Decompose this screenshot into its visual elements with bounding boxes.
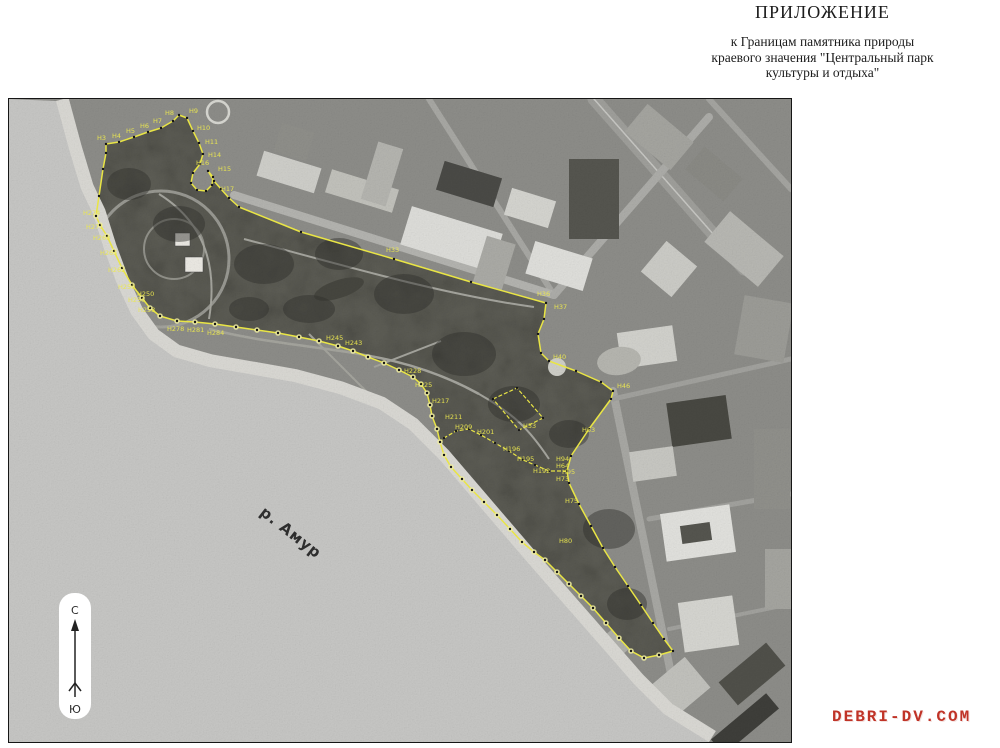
boundary-point-label: Н196 bbox=[503, 445, 520, 453]
boundary-point-label: Н53 bbox=[523, 422, 536, 430]
page-title: ПРИЛОЖЕНИЕ bbox=[645, 2, 1000, 23]
boundary-point-label: Н192 bbox=[533, 467, 550, 475]
boundary-point-label: Н63 bbox=[582, 426, 595, 434]
aerial-map: Н3Н4Н5Н6Н7Н8Н9Н10Н11Н14Н15Н16Н17Н33Н36Н3… bbox=[8, 98, 792, 743]
boundary-point-label: Н225 bbox=[415, 381, 432, 389]
boundary-point-label: Н262 bbox=[108, 266, 125, 274]
boundary-point-label: Н37 bbox=[554, 303, 567, 311]
boundary-point-label: Н195 bbox=[517, 455, 534, 463]
boundary-point-label: Н46 bbox=[617, 382, 630, 390]
boundary-point-label: Н7 bbox=[153, 117, 162, 125]
header: ПРИЛОЖЕНИЕ к Границам памятника природы … bbox=[645, 0, 1000, 81]
boundary-point-label: Н11 bbox=[205, 138, 218, 146]
boundary-point-label: Н217 bbox=[432, 397, 449, 405]
compass-south-label: Ю bbox=[69, 703, 81, 716]
boundary-point-label: Н5 bbox=[126, 127, 135, 135]
boundary-point-label: Н253 bbox=[138, 306, 155, 314]
boundary-point-label: Н3 bbox=[97, 134, 106, 142]
boundary-point-label: Н243 bbox=[345, 339, 362, 347]
boundary-point-label: Н245 bbox=[326, 334, 343, 342]
boundary-point-label: Н271 bbox=[86, 223, 103, 231]
boundary-point-label: Н36 bbox=[537, 290, 550, 298]
boundary-point-label: Н16 bbox=[196, 159, 209, 167]
boundary-point-label: Н265 bbox=[100, 249, 117, 257]
boundary-point-label: Н274 bbox=[83, 209, 100, 217]
photo-grain bbox=[9, 99, 791, 742]
boundary-point-label: Н209 bbox=[455, 423, 472, 431]
boundary-point-label: Н40 bbox=[553, 353, 566, 361]
subtitle-line: краевого значения "Центральный парк bbox=[645, 50, 1000, 66]
boundary-point-label: Н73 bbox=[556, 475, 569, 483]
boundary-point-label: Н94 bbox=[556, 455, 569, 463]
boundary-point-label: Н10 bbox=[197, 124, 210, 132]
boundary-point-label: Н256 bbox=[128, 296, 145, 304]
boundary-point-label: Н281 bbox=[187, 326, 204, 334]
boundary-point-label: Н95 bbox=[562, 468, 575, 476]
compass-north-label: С bbox=[71, 604, 79, 617]
boundary-point-label: Н201 bbox=[477, 428, 494, 436]
boundary-point-label: Н17 bbox=[221, 185, 234, 193]
boundary-point-label: Н6 bbox=[140, 122, 149, 130]
boundary-point-label: Н75 bbox=[565, 497, 578, 505]
boundary-point-label: Н228 bbox=[404, 367, 421, 375]
document-page: ПРИЛОЖЕНИЕ к Границам памятника природы … bbox=[0, 0, 1000, 748]
boundary-point-label: Н9 bbox=[189, 107, 198, 115]
boundary-point-label: Н33 bbox=[386, 246, 399, 254]
boundary-point-label: Н211 bbox=[445, 413, 462, 421]
boundary-point-label: Н8 bbox=[165, 109, 174, 117]
subtitle-line: культуры и отдыха" bbox=[645, 65, 1000, 81]
compass: С Ю bbox=[59, 593, 91, 719]
boundary-point-label: Н4 bbox=[112, 132, 121, 140]
boundary-point-label: Н14 bbox=[208, 151, 221, 159]
site-watermark: DEBRI-DV.COM bbox=[832, 708, 971, 726]
boundary-point-label: Н284 bbox=[207, 329, 224, 337]
boundary-point-label: Н278 bbox=[167, 325, 184, 333]
boundary-point-label: Н268 bbox=[93, 234, 110, 242]
subtitle-line: к Границам памятника природы bbox=[645, 34, 1000, 50]
boundary-point-label: Н259 bbox=[118, 283, 135, 291]
page-subtitle: к Границам памятника природы краевого зн… bbox=[645, 34, 1000, 81]
boundary-point-label: Н80 bbox=[559, 537, 572, 545]
boundary-point-label: Н15 bbox=[218, 165, 231, 173]
aerial-map-image: Н3Н4Н5Н6Н7Н8Н9Н10Н11Н14Н15Н16Н17Н33Н36Н3… bbox=[9, 99, 791, 742]
